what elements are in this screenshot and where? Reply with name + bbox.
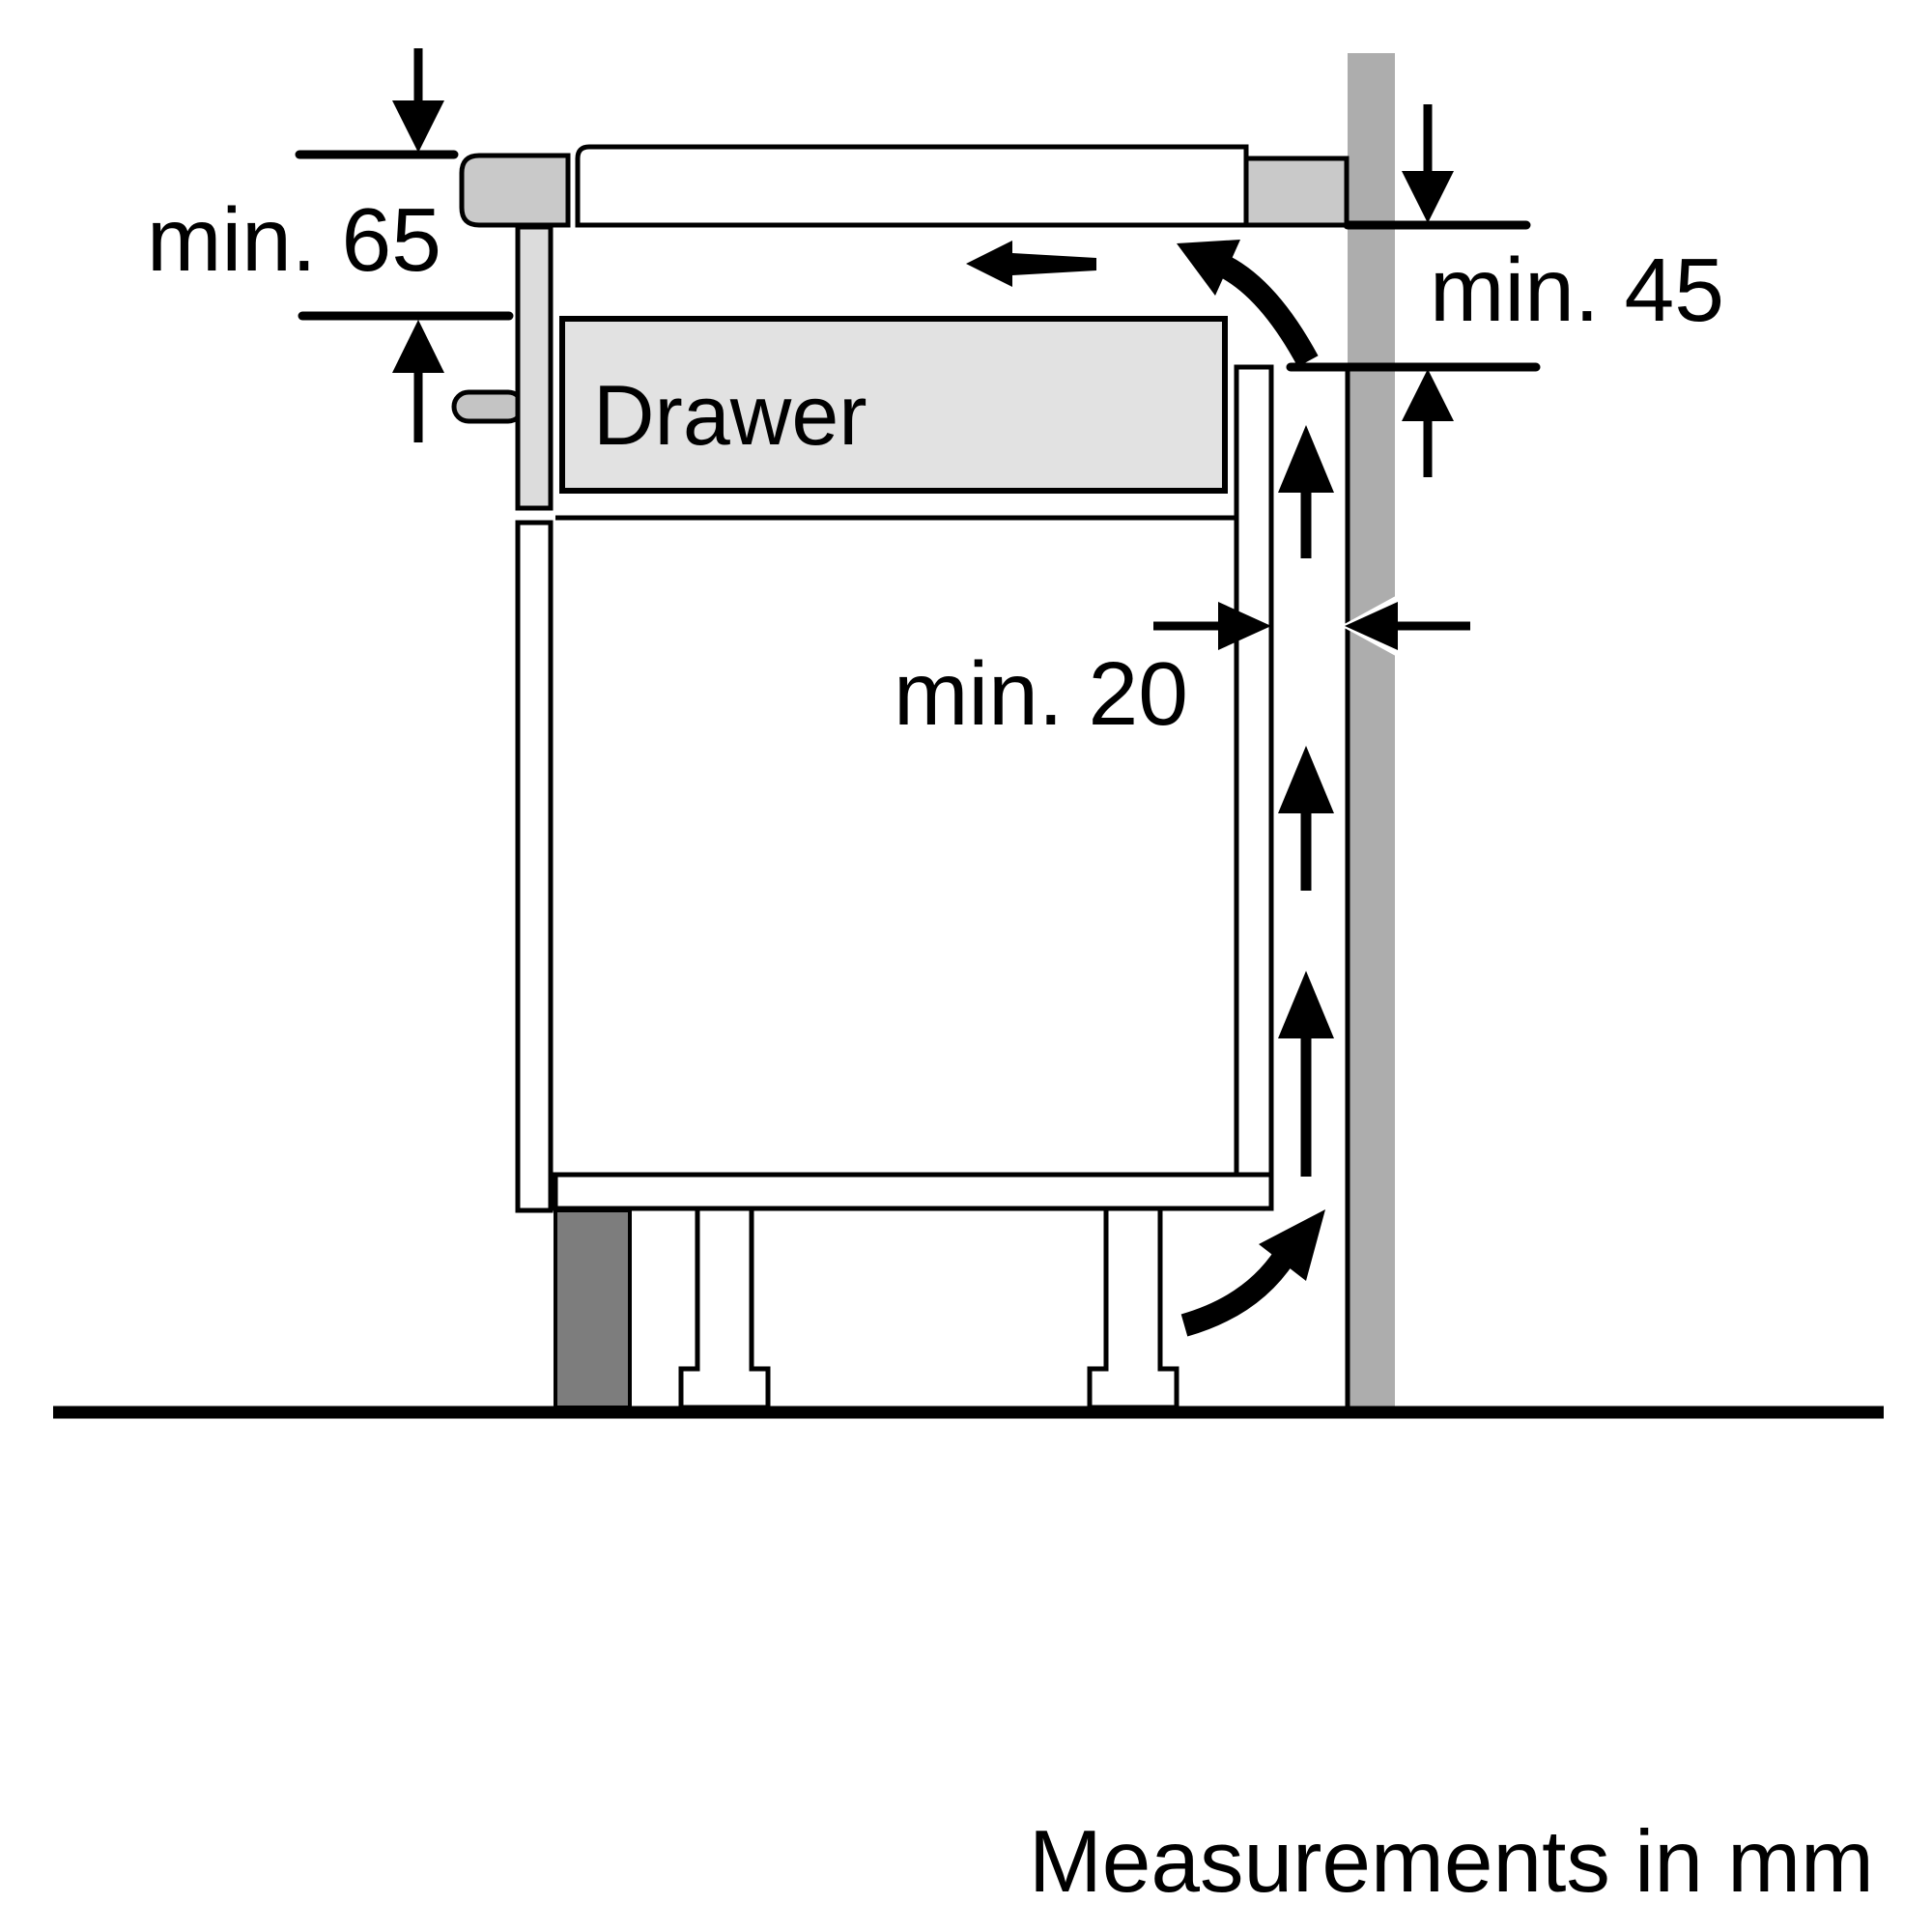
dim45-down-arrow-head-icon [1402,171,1454,223]
dim45-up-arrow-head-icon [1402,369,1454,421]
cabinet-leg-rear [1090,1208,1177,1407]
airflow-left-arrow-head-icon [966,241,1012,287]
drawer-label: Drawer [593,367,867,463]
dimension-min-65: min. 65 [147,48,509,442]
dim65-label: min. 65 [147,189,441,290]
drawer-front-panel [518,227,551,508]
dim65-up-arrow-head-icon [392,320,444,373]
cabinet-door [518,523,551,1210]
installation-diagram: Drawer min. 65 min. 45 min. [0,0,1932,1932]
hob-body [578,147,1246,225]
airflow-left-arrow-shaft [1012,253,1096,275]
airflow-up-arrow3-head-icon [1278,971,1334,1038]
airflow-up-arrow1-head-icon [1278,425,1334,493]
airflow-top-curve-shaft [1225,267,1308,361]
cabinet-back-panel [1236,367,1271,1175]
worktop-end-strip [1246,158,1347,225]
base-cabinet [518,367,1271,1407]
plinth-block [555,1210,630,1407]
drawer-handle [454,392,523,421]
wall-body [1348,53,1395,1406]
cabinet-bottom-shelf [555,1175,1271,1208]
worktop-hob-section [462,147,1347,225]
diagram-canvas: Drawer min. 65 min. 45 min. [0,0,1932,1932]
cabinet-leg-front [681,1208,768,1407]
hob-front-lip [462,156,568,225]
wall [1348,53,1395,1406]
dim65-down-arrow-head-icon [392,100,444,153]
airflow-bottom-curve-shaft [1184,1256,1285,1325]
airflow-up-arrow2-head-icon [1278,746,1334,813]
dim20-label: min. 20 [894,643,1188,744]
dim45-label: min. 45 [1430,240,1724,340]
footnote-measurements: Measurements in mm [1029,1813,1874,1911]
drawer-unit: Drawer [454,227,1225,508]
